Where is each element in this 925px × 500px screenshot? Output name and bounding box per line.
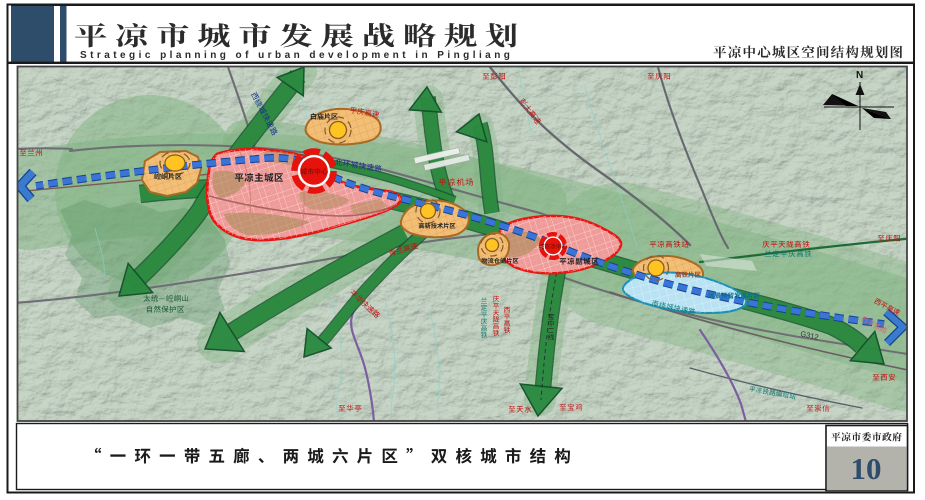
svg-text:Strategic planning of urban de: Strategic planning of urban development … bbox=[80, 50, 513, 61]
svg-text:10: 10 bbox=[851, 451, 882, 486]
svg-text:N: N bbox=[856, 70, 863, 81]
